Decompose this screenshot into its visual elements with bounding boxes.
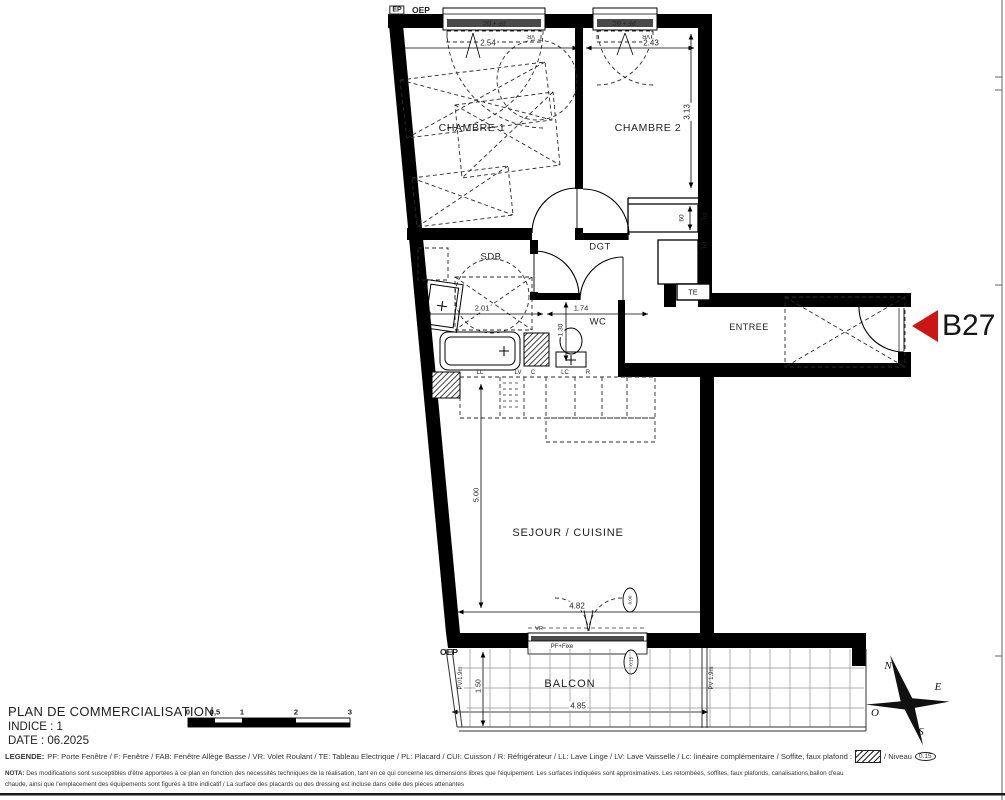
- dim-balcon-width: 4.85: [569, 702, 587, 711]
- vr-label-sejour: VR: [535, 626, 543, 632]
- room-label-entree: ENTREE: [729, 322, 769, 332]
- ep-label: EP: [389, 6, 404, 15]
- oep-label-bottom: OEP: [440, 647, 458, 657]
- sheet-indice: INDICE : 1: [8, 721, 214, 733]
- dim-balcon-depth: 1.50: [476, 678, 483, 694]
- cuisson-label: C: [531, 370, 535, 376]
- pv-label-right: PV 1.9m: [709, 666, 715, 689]
- legend-niveau-label: / Niveau: [884, 752, 912, 761]
- kitchen-hatch-marks: [503, 383, 521, 407]
- dim-chambre1-width: 2.54: [479, 39, 497, 48]
- compass-west-label: O: [871, 707, 879, 719]
- dim-wc-depth: 1.30: [558, 323, 565, 338]
- te-label: TE: [688, 288, 698, 297]
- floor-plan-sheet: CHAMBRE 1 CHAMBRE 2 SDB DGT WC ENTREE SE…: [0, 0, 1005, 800]
- unit-arrow: [912, 310, 938, 342]
- sheet-frame: [995, 0, 1002, 800]
- walls: [388, 14, 911, 666]
- room-label-chambre2: CHAMBRE 2: [615, 122, 682, 134]
- nota-line2: chaude, ainsi que l'emplacement des équi…: [5, 781, 464, 788]
- door-swings: [532, 188, 904, 352]
- sheet-date: DATE : 06.2025: [8, 735, 214, 747]
- vr-label-chambre2: VR: [642, 33, 650, 39]
- room-label-wc: WC: [590, 317, 607, 328]
- vr-label-chambre1: VR: [527, 33, 535, 39]
- ll-label: LL: [477, 370, 484, 376]
- nota-title: NOTA:: [5, 770, 24, 777]
- scale-tick-05: 0,5: [210, 708, 220, 717]
- lv-label: LV: [515, 370, 522, 376]
- unit-number-label: B27: [942, 309, 995, 343]
- scale-tick-0: 0: [186, 708, 190, 717]
- compass-north-label: N: [884, 660, 891, 672]
- dim-chambre2-height: 3.13: [683, 103, 692, 121]
- level-marker-balcony: -0.15: [629, 657, 634, 667]
- window-type-label-chambre2: PF + GC: [612, 19, 636, 25]
- legend-niveau-sample: 0.15: [915, 752, 936, 761]
- level-marker-interior: 0.00: [628, 596, 633, 605]
- dim-sejour-height: 5.00: [472, 487, 481, 504]
- placard-label-1: PL: [700, 213, 707, 222]
- placard-label-2: PL: [700, 242, 707, 251]
- room-label-chambre1: CHAMBRE 1: [439, 122, 506, 134]
- refrigerateur-label: R: [586, 370, 590, 376]
- pv-label-left: PV/1.9m: [458, 666, 464, 689]
- room-label-balcon: BALCON: [544, 678, 595, 690]
- balcony: [446, 640, 870, 732]
- soffite-hatch-swatch: [855, 750, 881, 763]
- dim-sdb-width: 2.01: [474, 304, 491, 313]
- dim-placard-depth: 60: [679, 213, 686, 222]
- dim-sejour-width: 4.82: [568, 602, 586, 611]
- legend: LEGENDE: PF: Porte Fenêtre / F: Fenêtre …: [5, 750, 1003, 763]
- furniture-dashed: [400, 40, 905, 442]
- dim-chambre2-width: 2.43: [642, 39, 660, 48]
- scale-tick-2: 2: [294, 708, 298, 717]
- compass-south-label: S: [918, 726, 924, 738]
- lc-label: LC: [561, 370, 569, 376]
- scale-tick-1: 1: [240, 708, 244, 717]
- room-label-dgt: DGT: [589, 242, 611, 253]
- compass-rose: [853, 641, 961, 759]
- bottom-border: [0, 793, 1005, 796]
- nota-line1: Des modifications sont susceptibles d'êt…: [26, 770, 843, 777]
- scale-tick-3: 3: [348, 708, 352, 717]
- oep-label-top: OEP: [412, 5, 430, 15]
- window-type-label-sejour: PF+Fixe: [551, 644, 574, 650]
- nota-block: NOTA: Des modifications sont susceptible…: [5, 768, 997, 790]
- legend-title: LEGENDE:: [5, 752, 44, 761]
- legend-text: PF: Porte Fenêtre / F: Fenêtre / FAB: Fe…: [47, 752, 852, 761]
- compass-east-label: E: [935, 681, 942, 693]
- window-type-label-chambre1: PF + GC: [482, 19, 506, 25]
- dim-wc-width: 1.74: [573, 304, 590, 313]
- bathtub: [440, 332, 520, 370]
- floor-plan-drawing: [0, 0, 1005, 800]
- title-block: PLAN DE COMMERCIALISATION INDICE : 1 DAT…: [8, 704, 214, 747]
- room-label-sdb: SDB: [480, 252, 501, 263]
- room-label-sejour-cuisine: SEJOUR / CUISINE: [512, 527, 623, 539]
- sheet-title: PLAN DE COMMERCIALISATION: [8, 704, 214, 719]
